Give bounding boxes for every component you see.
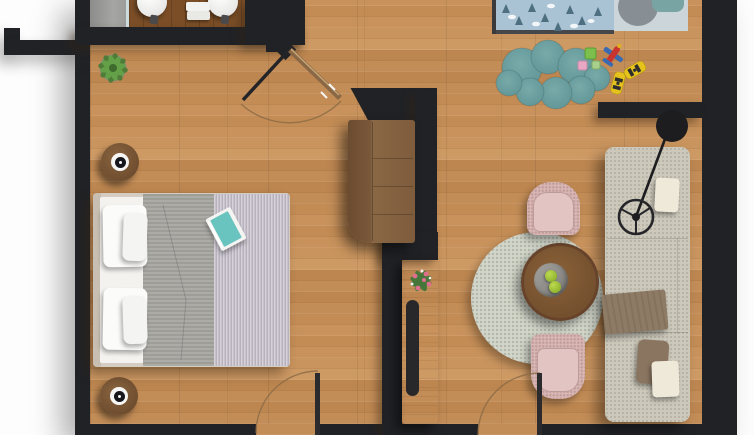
armchair-top: [527, 182, 580, 235]
kids-cushion: [652, 0, 684, 12]
faucet-right: [220, 14, 229, 24]
wall-hall-east: [415, 90, 437, 245]
fruit-bowl: [534, 263, 568, 297]
pillow: [122, 213, 148, 262]
sofa-pillow: [651, 361, 679, 398]
coffee-table: [521, 243, 599, 321]
pillow: [122, 296, 148, 345]
armchair-seat: [533, 192, 574, 232]
wardrobe-divider: [372, 122, 373, 241]
sofa-pillow: [654, 177, 680, 212]
lamp-shade: [114, 391, 125, 402]
wall-kids-south: [598, 102, 702, 118]
console-tray: [406, 300, 419, 396]
nightstand-top: [101, 143, 139, 181]
sofa-seam: [677, 238, 678, 334]
tv-console: [402, 259, 438, 424]
nightstand-bottom: [100, 377, 138, 415]
sofa: [605, 147, 690, 422]
sofa-seam: [607, 238, 688, 239]
wall-living-west: [382, 240, 402, 435]
table-lamp: [111, 153, 129, 171]
living-door-opening: [478, 424, 538, 435]
lamp-shade: [115, 157, 126, 168]
double-bed: [93, 193, 290, 367]
towel: [187, 11, 210, 20]
shower-floor: [90, 0, 129, 27]
wardrobe-seam: [373, 186, 413, 187]
armchair-bottom: [531, 334, 585, 399]
glass-partition: [126, 0, 129, 27]
lamp-highlight: [118, 395, 121, 398]
wardrobe-seam: [373, 214, 413, 215]
floorplan-canvas: [0, 0, 754, 435]
towel: [186, 2, 210, 11]
table-lamp: [110, 387, 128, 405]
towel-stack: [186, 2, 210, 20]
wardrobe-seam: [373, 158, 413, 159]
apple: [549, 281, 561, 293]
kids-bed: [492, 0, 696, 34]
kids-bed-rail: [496, 30, 614, 34]
armchair-seat: [537, 348, 579, 392]
lamp-highlight: [119, 161, 122, 164]
throw-blanket: [601, 289, 668, 334]
faucet-left: [149, 14, 158, 24]
bedroom-door-opening: [256, 424, 316, 435]
kids-duvet: [496, 0, 614, 32]
wardrobe-cabinet: [348, 120, 415, 243]
bed-blanket-grey: [143, 194, 214, 366]
